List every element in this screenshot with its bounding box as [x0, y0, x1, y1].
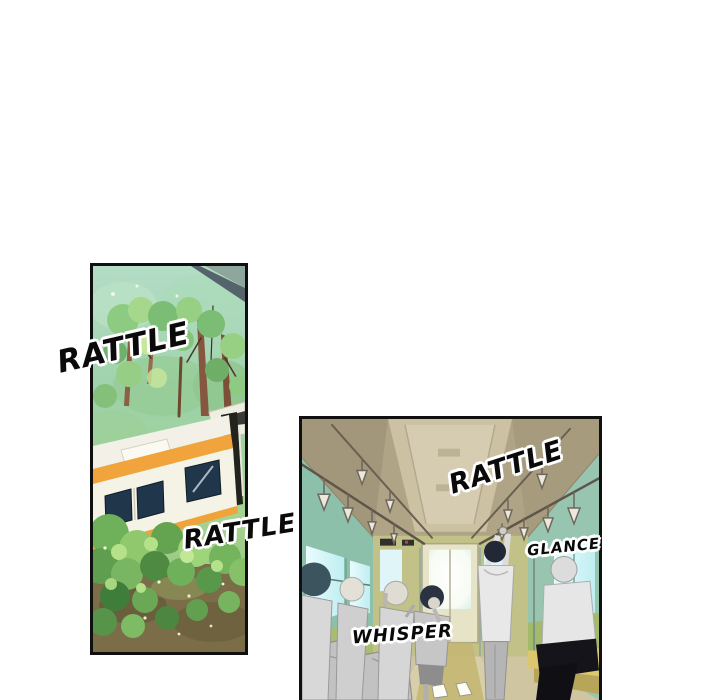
passenger-far-left [302, 562, 332, 700]
comic-page: RATTLE RATTLE RATTLE GLANCE WHISPER [0, 0, 720, 700]
